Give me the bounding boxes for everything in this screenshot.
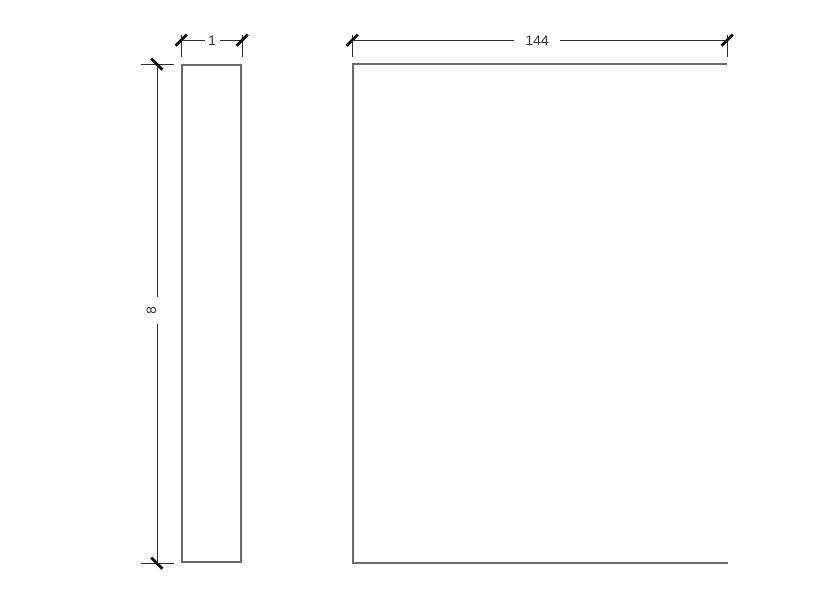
edge-width-dimension-line-left: [181, 40, 205, 41]
face-width-dimension-line-right: [560, 40, 727, 41]
face-width-dimension-line-left: [352, 40, 514, 41]
technical-drawing: 1 8 144: [0, 0, 840, 600]
edge-height-dimension-line-lower: [157, 324, 158, 563]
face-view-left-edge: [352, 63, 354, 564]
edge-height-label: 8: [144, 306, 158, 314]
edge-height-dimension-line-upper: [157, 64, 158, 297]
edge-width-label: 1: [208, 33, 216, 47]
face-view-top-edge: [352, 63, 727, 65]
face-width-label: 144: [525, 33, 548, 47]
face-view-bottom-edge: [352, 562, 728, 564]
edge-view-rectangle: [181, 64, 242, 563]
